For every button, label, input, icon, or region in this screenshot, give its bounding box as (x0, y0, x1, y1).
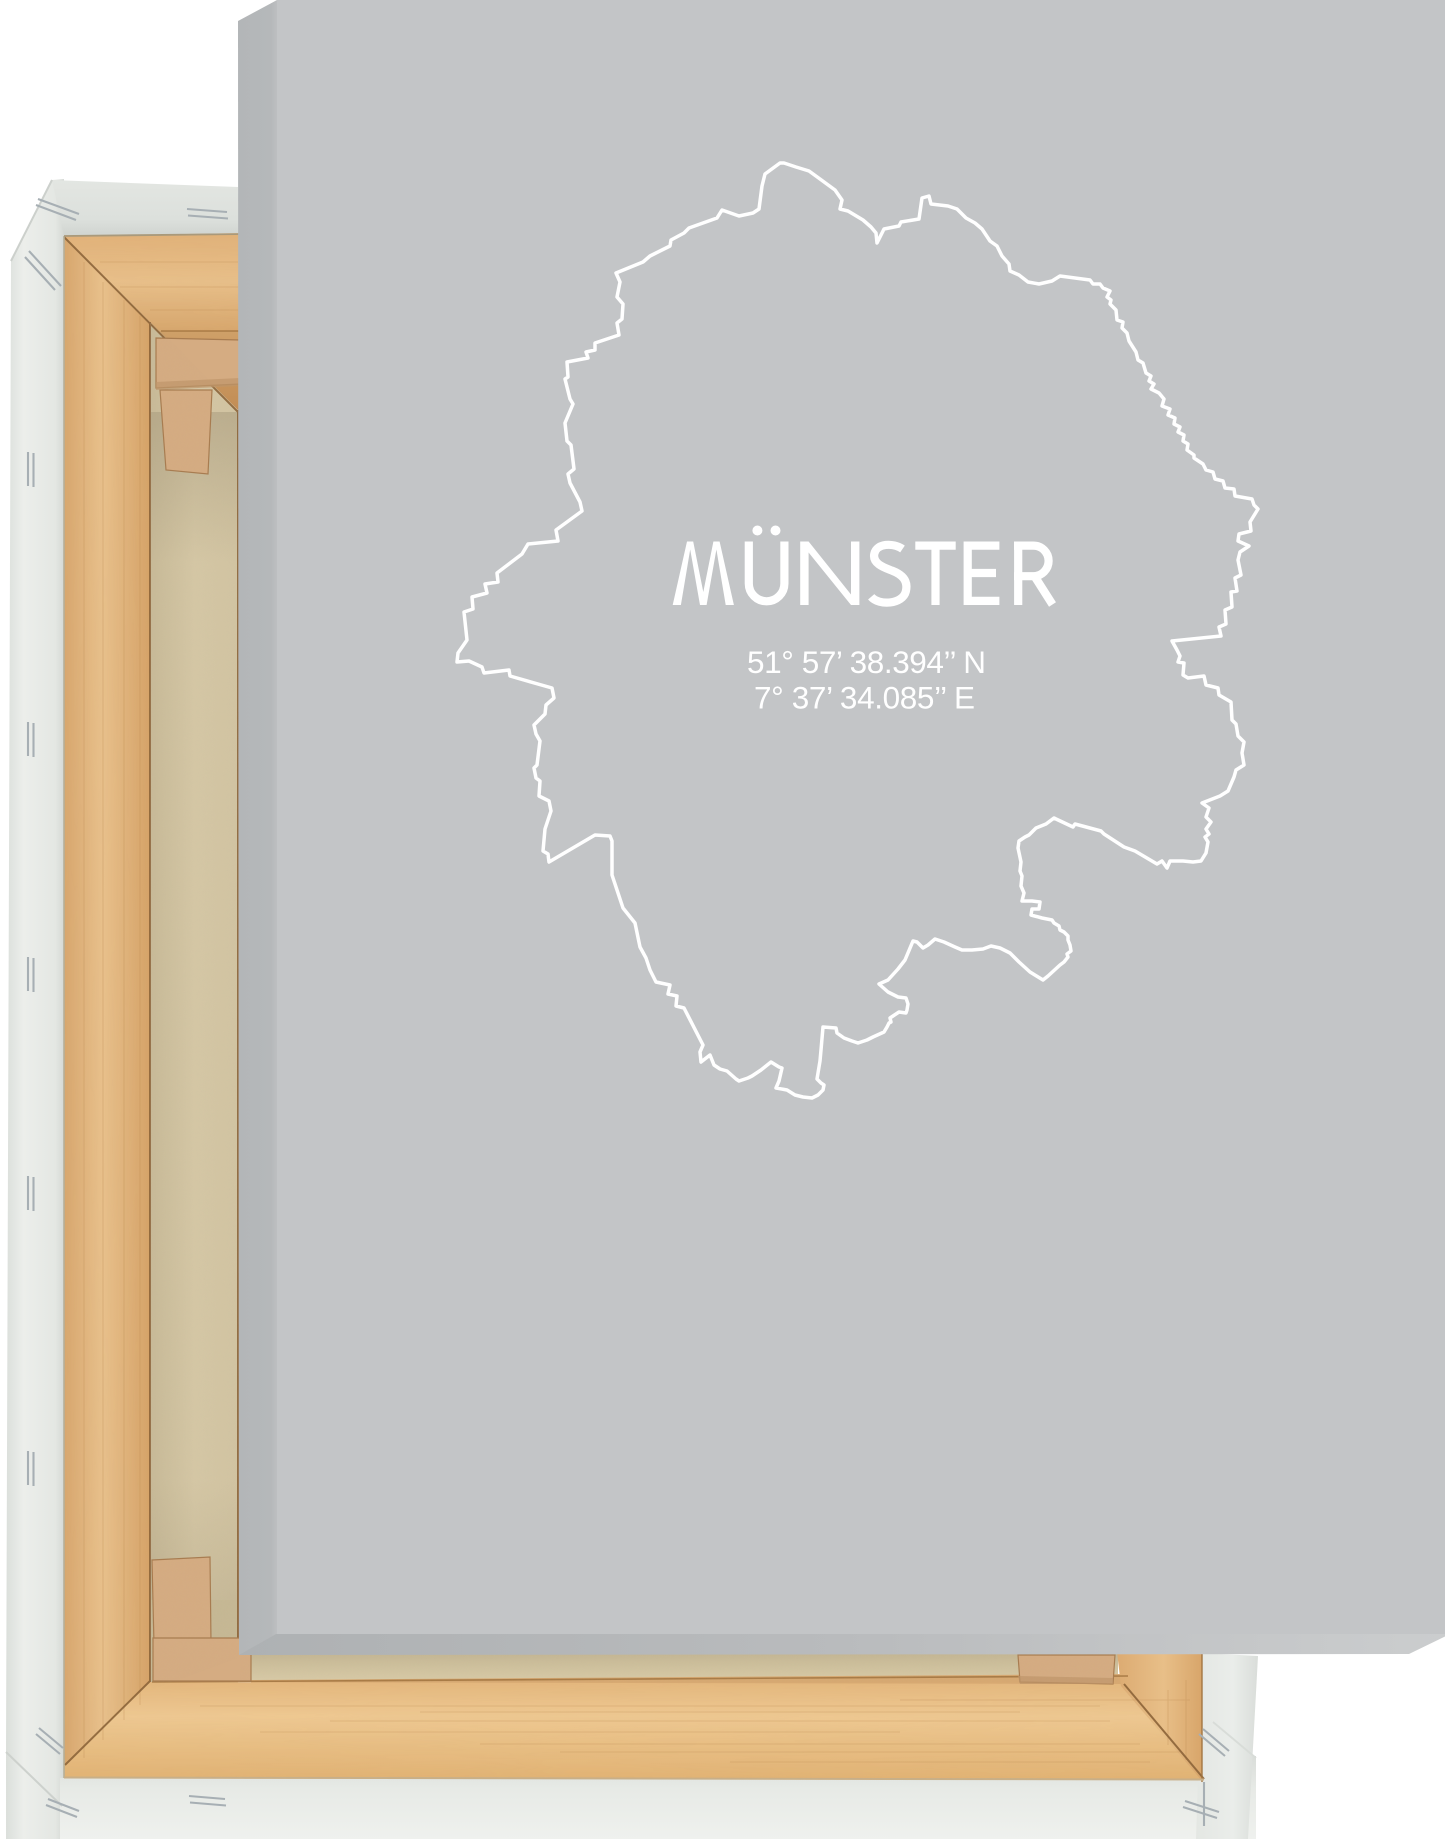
svg-text:7° 37’ 34.085’’ E: 7° 37’ 34.085’’ E (754, 680, 975, 716)
svg-text:51° 57’ 38.394’’ N: 51° 57’ 38.394’’ N (747, 644, 986, 680)
